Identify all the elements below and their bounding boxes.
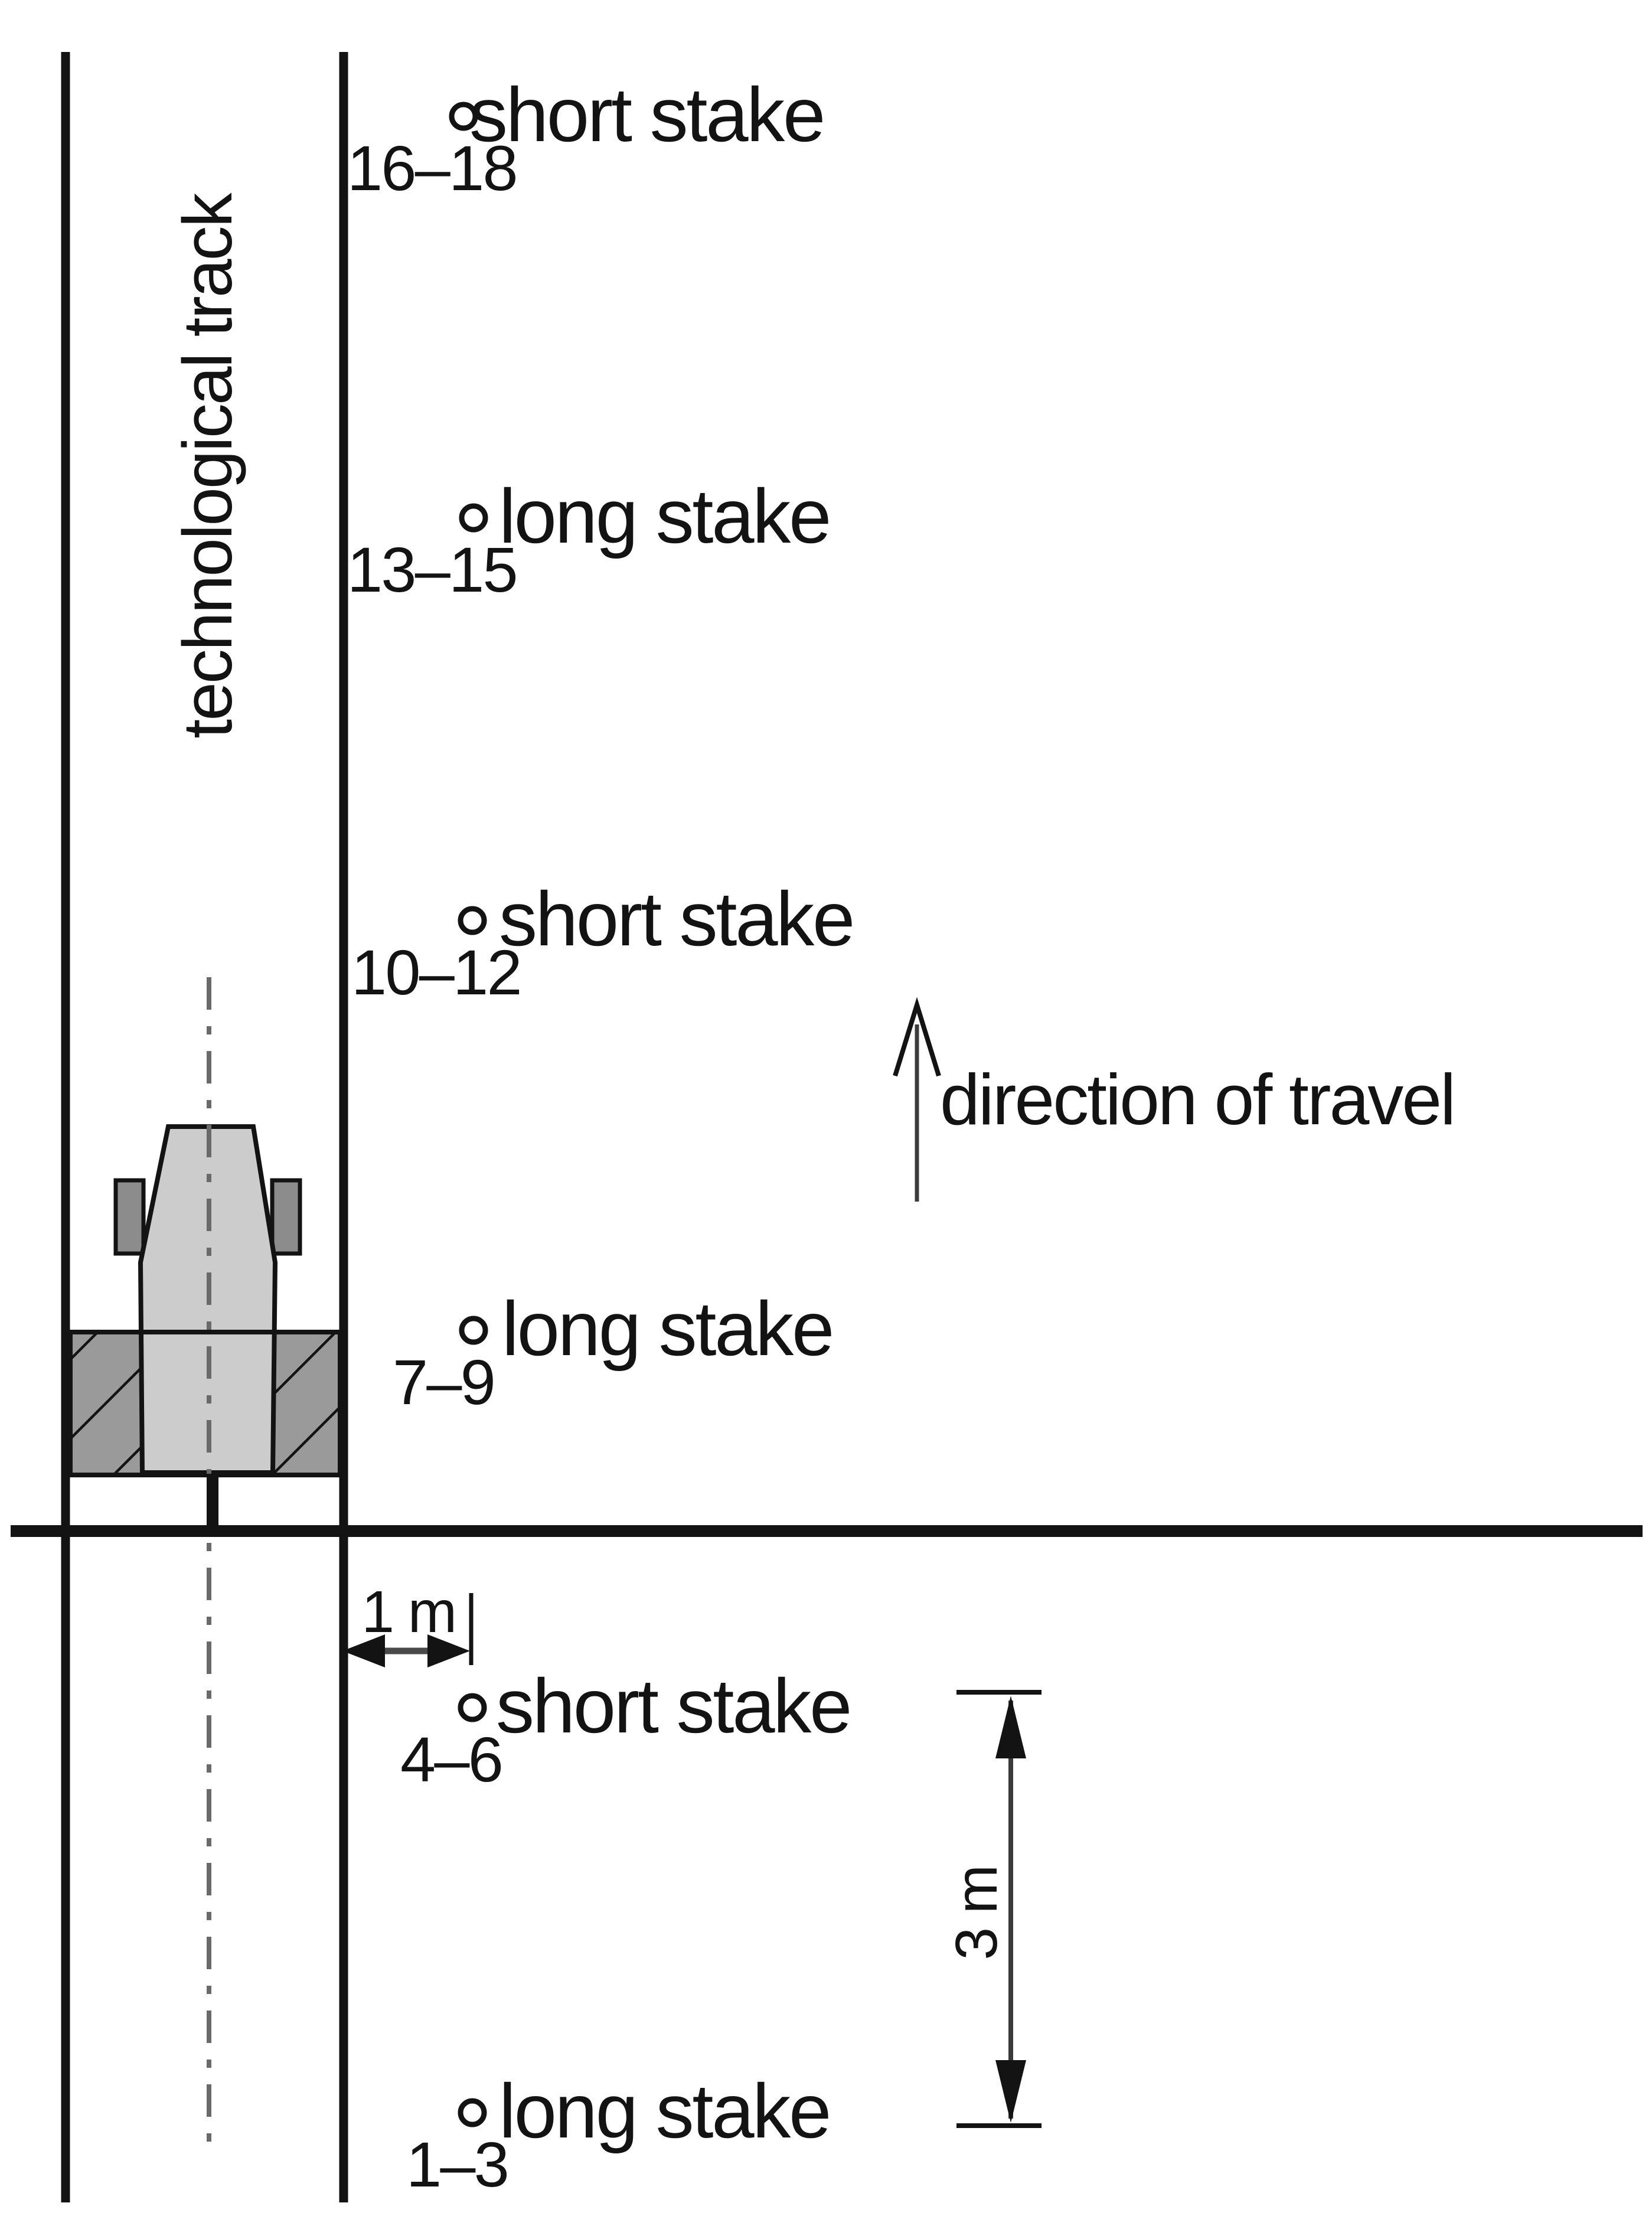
stake-type-label: short stake: [469, 76, 824, 153]
stake-range-label: 10–12: [351, 939, 521, 1006]
stake-type-label: long stake: [499, 2073, 830, 2149]
stake-type-label: short stake: [499, 880, 853, 957]
stake-range-label: 13–15: [347, 537, 517, 603]
tractor-wheel-right: [272, 1180, 300, 1254]
stake-range-label: 16–18: [347, 135, 517, 201]
stake-marker: [462, 506, 485, 530]
stake-type-label: long stake: [502, 1290, 832, 1367]
stake-marker: [462, 1318, 485, 1342]
stake-range-label: 7–9: [393, 1349, 494, 1415]
technological-track-label: technological track: [173, 194, 243, 738]
direction-of-travel-label: direction of travel: [940, 1063, 1454, 1135]
stake-marker: [461, 909, 484, 932]
stake-range-label: 1–3: [406, 2132, 508, 2198]
tractor-wheel-left: [116, 1180, 143, 1254]
hitch-mark: [207, 1474, 218, 1529]
stake-type-label: long stake: [499, 478, 830, 554]
stake-range-label: 4–6: [400, 1727, 502, 1793]
field-staking-diagram: technological track direction of travel …: [0, 0, 1652, 2216]
stake-marker: [461, 2101, 484, 2124]
stake-type-label: short stake: [496, 1667, 850, 1744]
direction-arrow: [895, 1005, 939, 1202]
stake-marker: [461, 1696, 484, 1719]
dimension-3m-label: 3 m: [947, 1866, 1006, 1960]
dimension-1m-label: 1 m: [361, 1582, 455, 1641]
